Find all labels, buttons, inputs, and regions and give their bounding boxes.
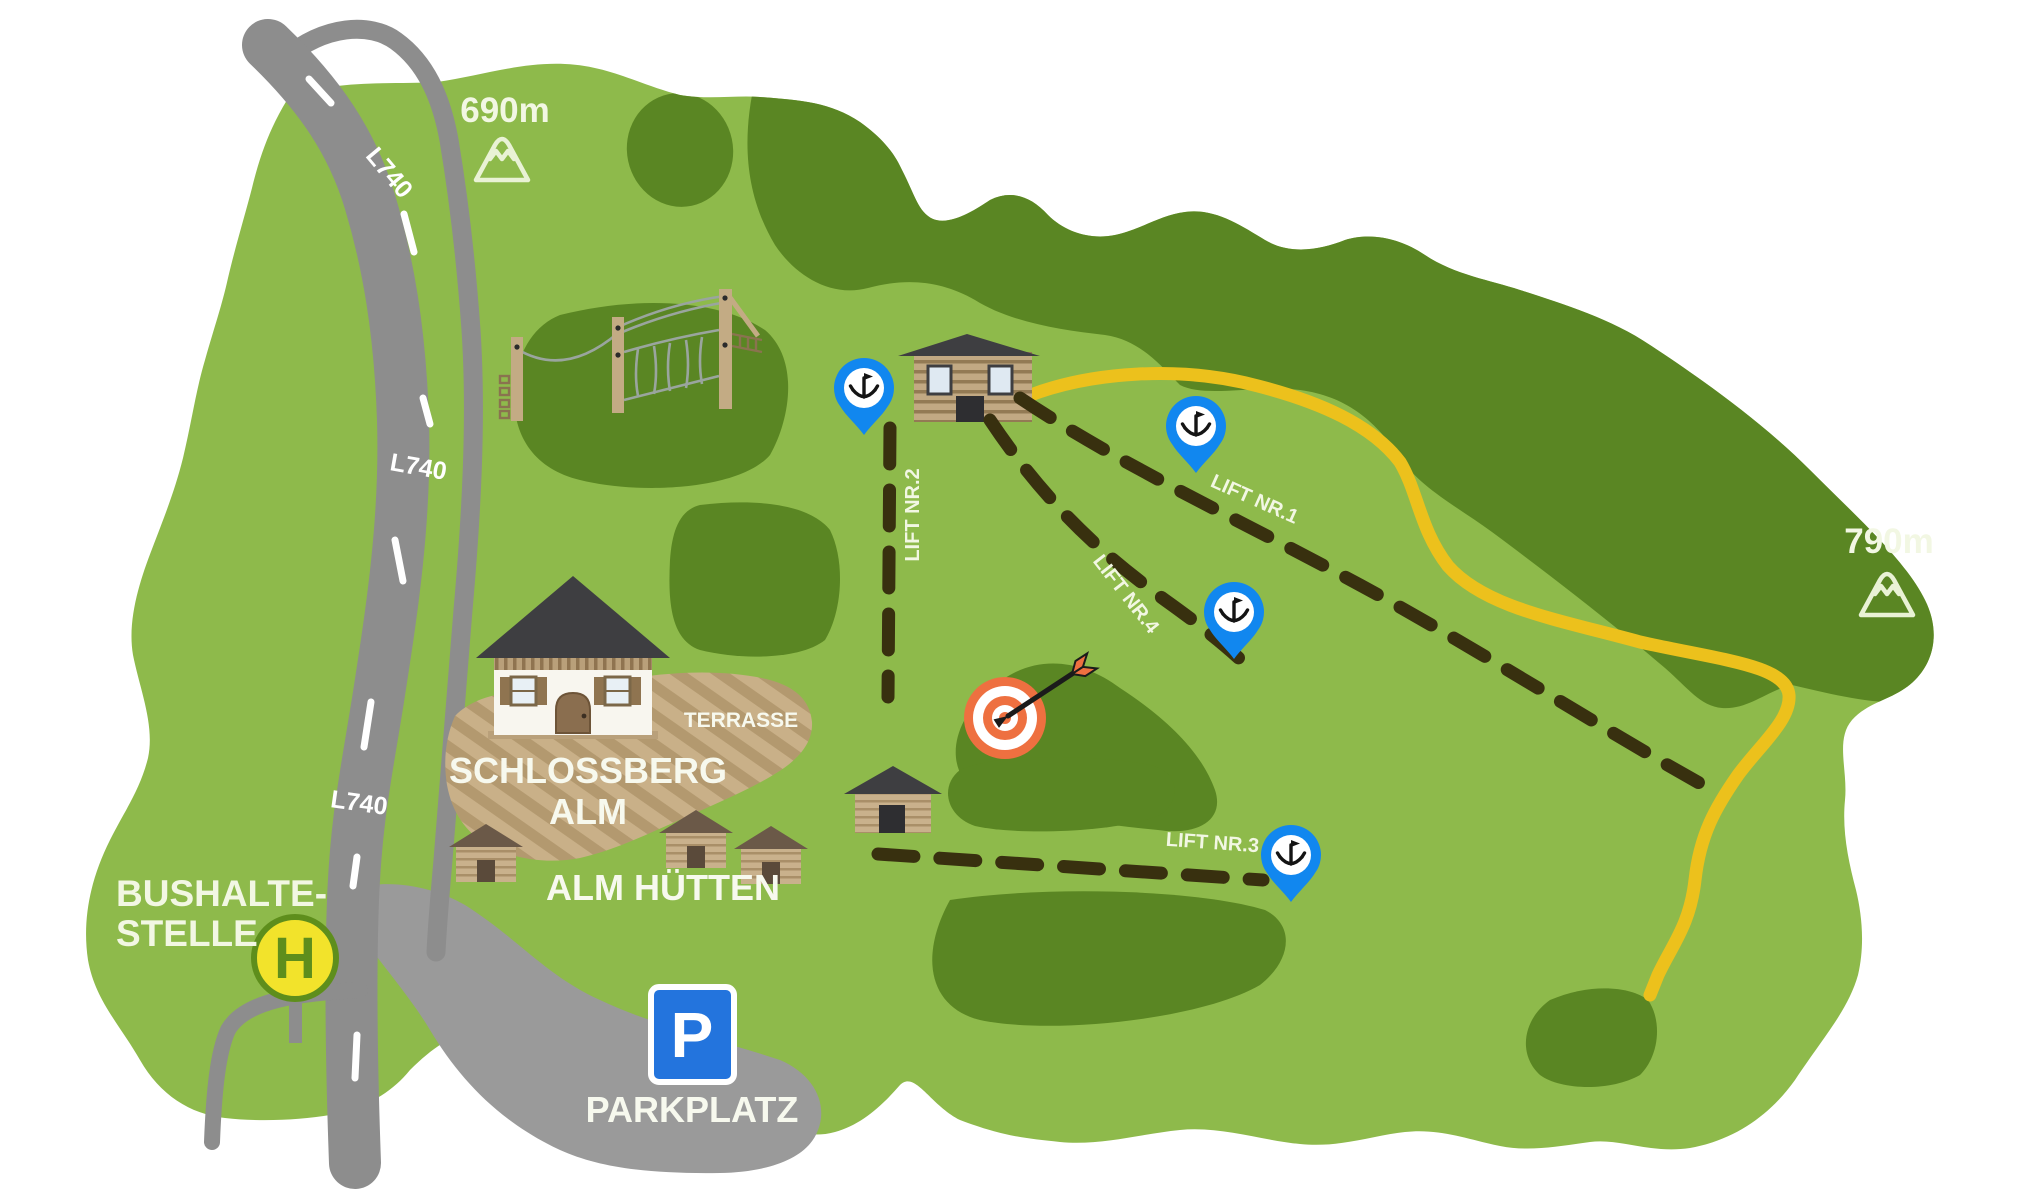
alm-door xyxy=(556,693,590,733)
alm-name-line1: SCHLOSSBERG xyxy=(449,750,727,791)
bus-stop-h: H xyxy=(274,926,316,991)
alm-door-handle xyxy=(582,714,587,719)
parking-p: P xyxy=(671,999,714,1071)
elevation-top-value: 690m xyxy=(460,91,550,130)
station-window-left xyxy=(928,366,951,394)
parking-sign: P xyxy=(651,987,734,1082)
map-canvas: L740 L740 L740 xyxy=(0,0,2021,1201)
forest-mid xyxy=(669,502,840,656)
resort-map: L740 L740 L740 xyxy=(0,0,2021,1201)
station-door xyxy=(956,396,984,422)
bus-stop-post xyxy=(289,998,302,1043)
post-3 xyxy=(719,289,732,409)
post-1 xyxy=(511,337,523,421)
post-2 xyxy=(612,317,624,413)
alm-window-left xyxy=(500,677,547,705)
station-window-right xyxy=(989,366,1012,394)
huts-label: ALM HÜTTEN xyxy=(546,867,780,908)
bus-stop-label-line1: BUSHALTE- xyxy=(116,873,327,914)
alm-window-right xyxy=(594,677,641,705)
terrace-label: TERRASSE xyxy=(684,709,798,732)
lift2-label: LIFT NR.2 xyxy=(902,468,924,561)
parking-label: PARKPLATZ xyxy=(586,1089,799,1130)
alm-name-line2: ALM xyxy=(549,791,627,832)
elevation-right-value: 790m xyxy=(1844,522,1934,561)
forest-strip-upper xyxy=(948,757,1175,831)
bus-stop-label-line2: STELLE xyxy=(116,913,258,954)
forest-playground xyxy=(514,303,788,488)
